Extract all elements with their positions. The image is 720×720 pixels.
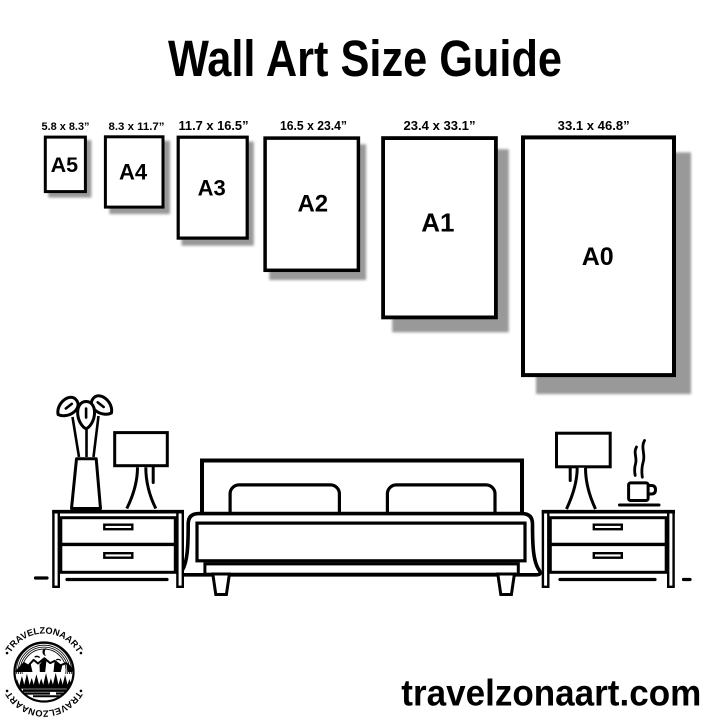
svg-text:Wall Art Size Guide: Wall Art Size Guide bbox=[168, 30, 562, 87]
svg-text:A2: A2 bbox=[297, 191, 328, 218]
svg-text:travelzonaart.com: travelzonaart.com bbox=[401, 672, 701, 714]
svg-text:A5: A5 bbox=[51, 153, 79, 177]
svg-text:23.4 x 33.1”: 23.4 x 33.1” bbox=[404, 119, 476, 133]
svg-text:16.5 x 23.4”: 16.5 x 23.4” bbox=[280, 119, 347, 133]
svg-text:A1: A1 bbox=[421, 207, 454, 237]
svg-text:A0: A0 bbox=[582, 243, 614, 271]
svg-text:11.7 x 16.5”: 11.7 x 16.5” bbox=[179, 119, 249, 133]
svg-text:8.3 x 11.7”: 8.3 x 11.7” bbox=[109, 121, 165, 133]
svg-text:33.1 x 46.8”: 33.1 x 46.8” bbox=[558, 119, 630, 133]
svg-text:5.8 x 8.3”: 5.8 x 8.3” bbox=[42, 121, 90, 133]
svg-text:A3: A3 bbox=[198, 176, 226, 201]
svg-text:A4: A4 bbox=[119, 160, 148, 185]
